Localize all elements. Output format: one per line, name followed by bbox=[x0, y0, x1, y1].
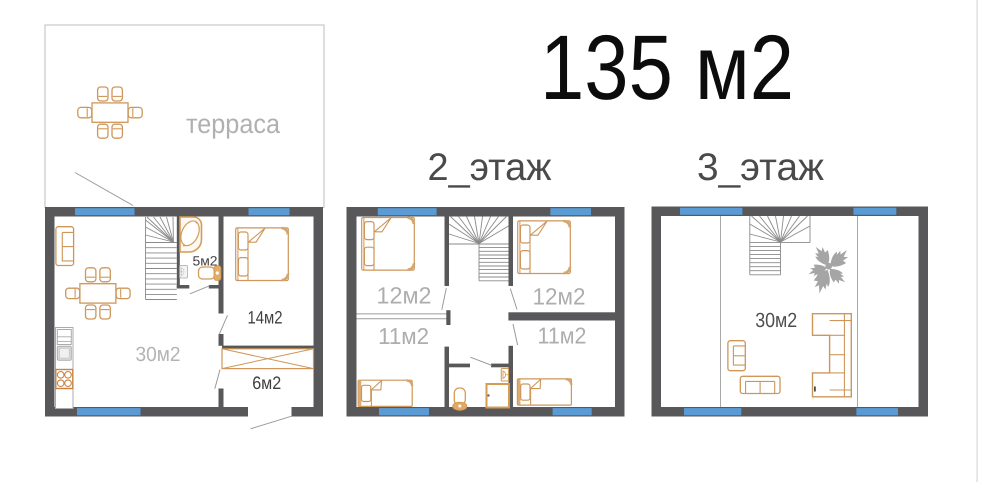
svg-text:6м2: 6м2 bbox=[252, 373, 281, 393]
svg-text:5м2: 5м2 bbox=[193, 254, 218, 269]
svg-text:3_этаж: 3_этаж bbox=[697, 146, 824, 189]
svg-text:135 м2: 135 м2 bbox=[540, 17, 794, 119]
svg-text:14м2: 14м2 bbox=[248, 308, 283, 328]
svg-text:11м2: 11м2 bbox=[378, 323, 429, 349]
svg-text:12м2: 12м2 bbox=[377, 282, 432, 308]
svg-text:30м2: 30м2 bbox=[755, 309, 797, 332]
svg-text:30м2: 30м2 bbox=[136, 343, 181, 366]
svg-text:терраса: терраса bbox=[186, 109, 281, 139]
svg-text:2_этаж: 2_этаж bbox=[428, 146, 552, 189]
svg-text:12м2: 12м2 bbox=[533, 284, 586, 310]
svg-text:11м2: 11м2 bbox=[538, 323, 587, 349]
